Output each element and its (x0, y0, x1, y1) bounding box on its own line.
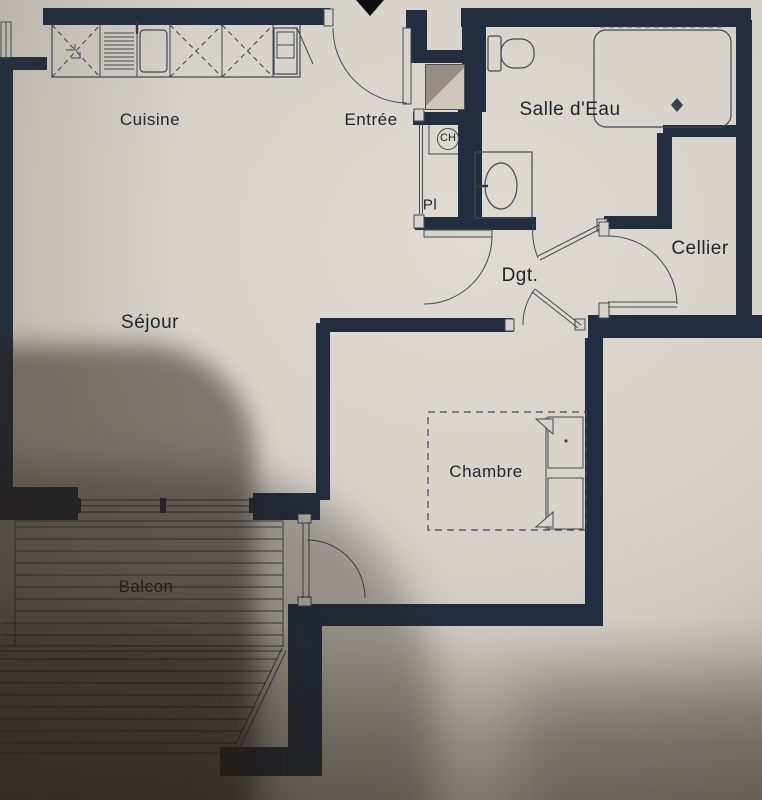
kitchen-window (1, 22, 11, 58)
room-label-balcon: Balcon (119, 577, 174, 597)
room-label-cellier: Cellier (671, 238, 728, 260)
chambre-door (505, 289, 585, 331)
balcony-door (298, 514, 365, 606)
room-label-salle-deau: Salle d'Eau (519, 99, 620, 121)
hob-symbol (66, 44, 80, 58)
kitchen-counter (52, 25, 300, 77)
toilet (488, 36, 534, 71)
washbasin (475, 152, 532, 218)
room-label-dgt: Dgt. (502, 265, 539, 287)
kitchen-sink (104, 20, 167, 72)
entrance-arrow-icon (356, 0, 384, 16)
shower-drain-icon (671, 98, 683, 112)
balcony-decking (0, 521, 286, 760)
bathroom-door (533, 219, 607, 260)
cellier-door (599, 222, 677, 318)
room-label-chauffe-eau: CH (440, 132, 456, 144)
entrance-door (324, 9, 411, 104)
room-label-entree: Entrée (344, 110, 397, 130)
sejour-window (76, 498, 254, 513)
kitchen-tall-unit (274, 28, 313, 74)
room-label-cuisine: Cuisine (120, 110, 180, 130)
room-label-chambre: Chambre (449, 462, 522, 482)
room-label-sejour: Séjour (121, 312, 179, 334)
sejour-door (424, 230, 492, 304)
room-label-placard: Pl (423, 197, 437, 214)
floorplan-photo: Cuisine Entrée Salle d'Eau Cellier Dgt. … (0, 0, 762, 800)
